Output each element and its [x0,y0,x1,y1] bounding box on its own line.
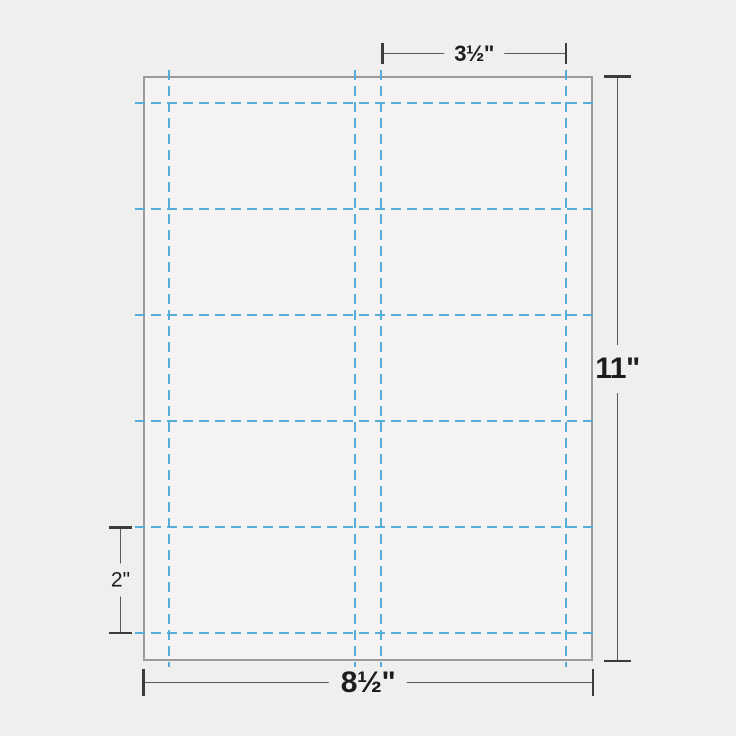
perforation-line-horizontal-row4 [135,420,594,422]
perforation-line-vertical-right-margin [565,70,567,667]
dimension-end-tick [109,526,132,529]
dimension-end-tick [604,75,631,78]
card-height-label: 2" [107,564,134,597]
business-card-template-diagram: 3½" 11" 2" 8½" [0,0,736,736]
dimension-end-tick [565,43,568,64]
dimension-end-tick [592,669,595,696]
sheet-width-label: 8½" [329,668,407,698]
dimension-end-tick [604,660,631,663]
paper-sheet [143,76,593,661]
dimension-card-height: 2" [109,526,132,634]
dimension-sheet-width: 8½" [142,669,594,696]
perforation-line-vertical-center-left [354,70,356,667]
sheet-height-label: 11" [593,345,641,393]
dimension-end-tick [109,632,132,635]
perforation-line-horizontal-row2 [135,208,594,210]
card-width-label: 3½" [444,43,504,65]
perforation-line-vertical-left-margin [168,70,170,667]
perforation-line-horizontal-row6 [135,632,594,634]
dimension-end-tick [381,43,384,64]
dimension-end-tick [142,669,145,696]
perforation-line-horizontal-row3 [135,314,594,316]
dimension-sheet-height: 11" [604,75,631,662]
perforation-line-horizontal-row5 [135,526,594,528]
perforation-line-horizontal-row1 [135,102,594,104]
dimension-card-width: 3½" [381,43,567,64]
perforation-line-vertical-center-right [380,70,382,667]
